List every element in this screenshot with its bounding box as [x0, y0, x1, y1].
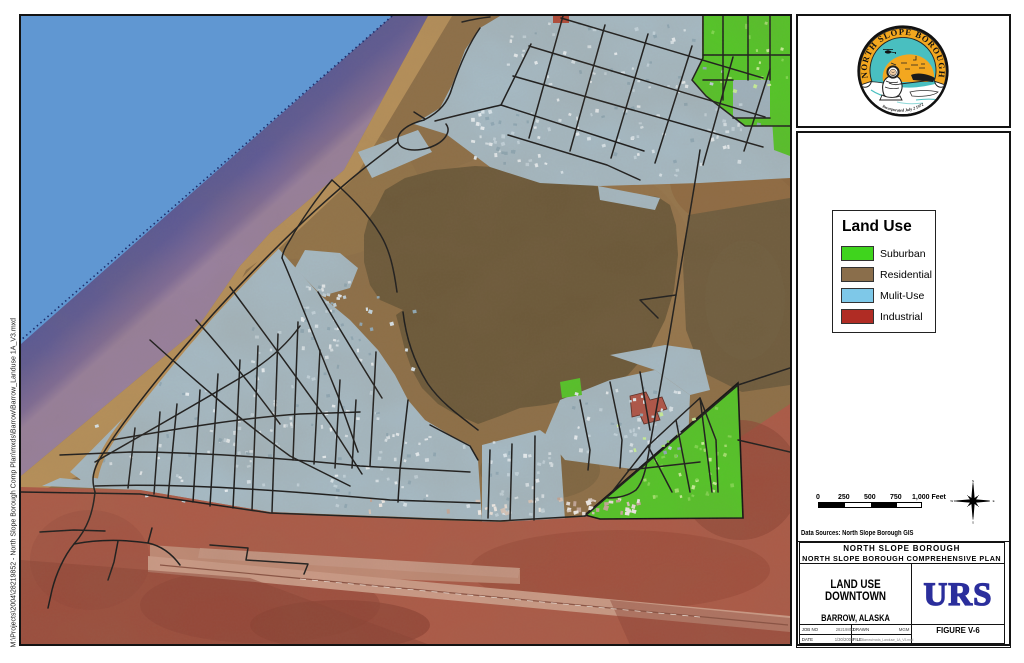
- svg-text:N: N: [972, 479, 974, 483]
- svg-text:W: W: [950, 499, 953, 503]
- svg-text:E: E: [993, 499, 995, 503]
- svg-text:S: S: [972, 521, 974, 524]
